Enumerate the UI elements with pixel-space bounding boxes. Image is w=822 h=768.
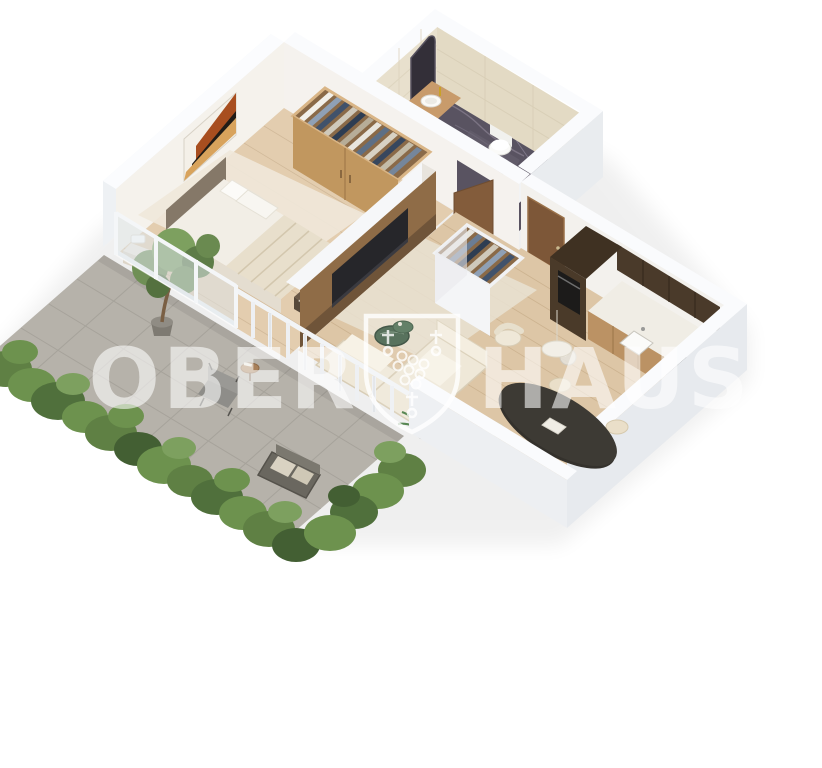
apartment-3d-scene: OBER HAUS: [0, 0, 822, 768]
watermark-text-right: HAUS: [478, 330, 751, 428]
floor-plan-render: OBER HAUS: [0, 0, 822, 768]
watermark-text-left: OBER: [89, 330, 359, 428]
watermark: OBER HAUS: [89, 316, 752, 432]
